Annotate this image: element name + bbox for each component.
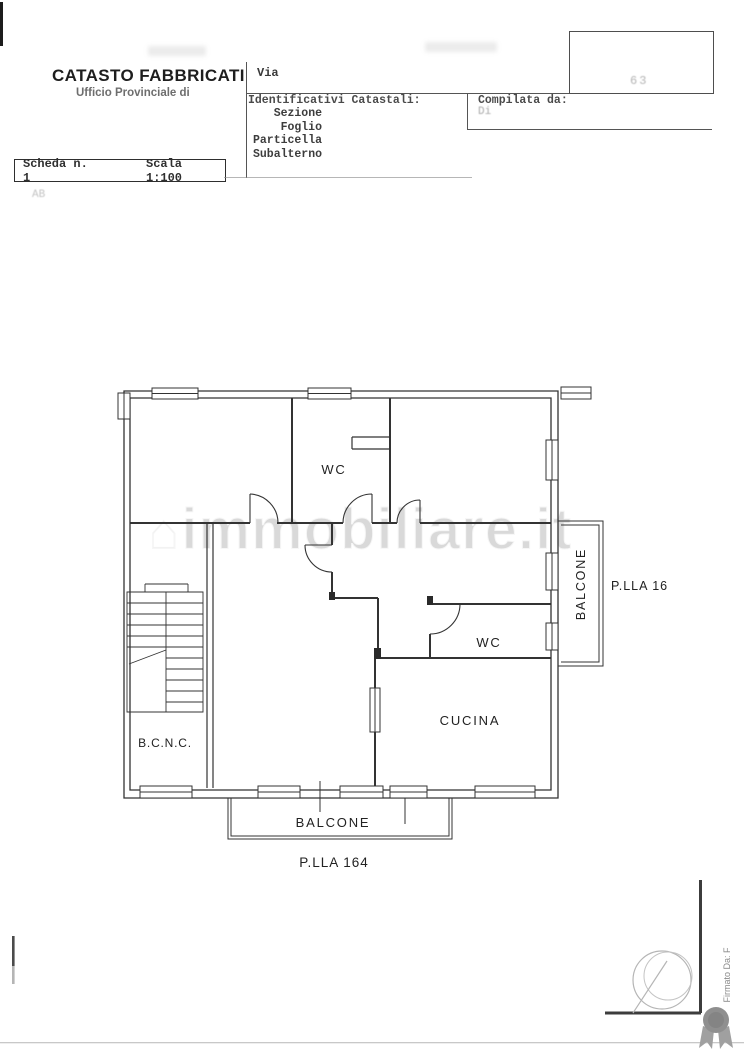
page-title: CATASTO FABBRICATI: [52, 66, 245, 86]
via-label: Via: [257, 66, 279, 80]
compilata-heading: Compilata da:: [478, 94, 568, 107]
compilata-box-left-edge: [467, 93, 468, 129]
row-particella: Particella: [246, 134, 322, 148]
room-label-wc-top: WC: [316, 462, 352, 477]
staircase: [127, 584, 203, 712]
office-subtitle: Ufficio Provinciale di: [76, 87, 190, 99]
door-jambs: [329, 592, 433, 659]
faded-note: AB: [32, 189, 45, 201]
identificativi-heading: Identificativi Catastali:: [248, 94, 421, 107]
scheda-scala-box: Scheda n. 1 Scala 1:100: [14, 159, 226, 182]
stamp-circle-icon: [633, 951, 692, 1013]
compilata-subline: Di: [478, 106, 491, 118]
house-icon: ⌂: [148, 503, 180, 561]
cadastral-sheet-page: CATASTO FABBRICATI Ufficio Provinciale d…: [0, 0, 744, 1050]
room-label-balcone-bottom: BALCONE: [294, 815, 372, 830]
watermark: ⌂immobiliare.it: [148, 496, 744, 563]
room-label-wc-mid: WC: [471, 635, 507, 650]
room-label-cucina: CUCINA: [436, 713, 504, 728]
row-subalterno: Subalterno: [246, 148, 322, 162]
balconies: [228, 521, 603, 839]
faint-number: 63: [630, 74, 648, 88]
stairwell-divider-walls: [207, 437, 390, 788]
room-label-balcone-right: BALCONE: [574, 544, 588, 624]
header-bottom-rule: [224, 177, 472, 178]
row-foglio: Foglio: [246, 121, 322, 135]
scala-label: Scala 1:100: [146, 157, 225, 185]
scan-smudge: [148, 46, 206, 56]
watermark-text: immobiliare.it: [181, 497, 572, 562]
scheda-label: Scheda n. 1: [23, 157, 102, 185]
row-sezione: Sezione: [246, 107, 322, 121]
parcel-label-bottom: P.LLA 164: [294, 855, 374, 870]
room-label-bcnc: B.C.N.C.: [134, 736, 196, 750]
compilata-box-bottom-edge: [467, 129, 712, 130]
interior-walls: [130, 398, 551, 788]
identificativi-rows: Sezione Foglio Particella Subalterno: [246, 107, 322, 161]
parcel-label-right: P.LLA 16: [611, 579, 681, 593]
scan-smudge: [425, 42, 497, 52]
digital-signature-note: Firmato Da: F: [722, 934, 734, 1016]
